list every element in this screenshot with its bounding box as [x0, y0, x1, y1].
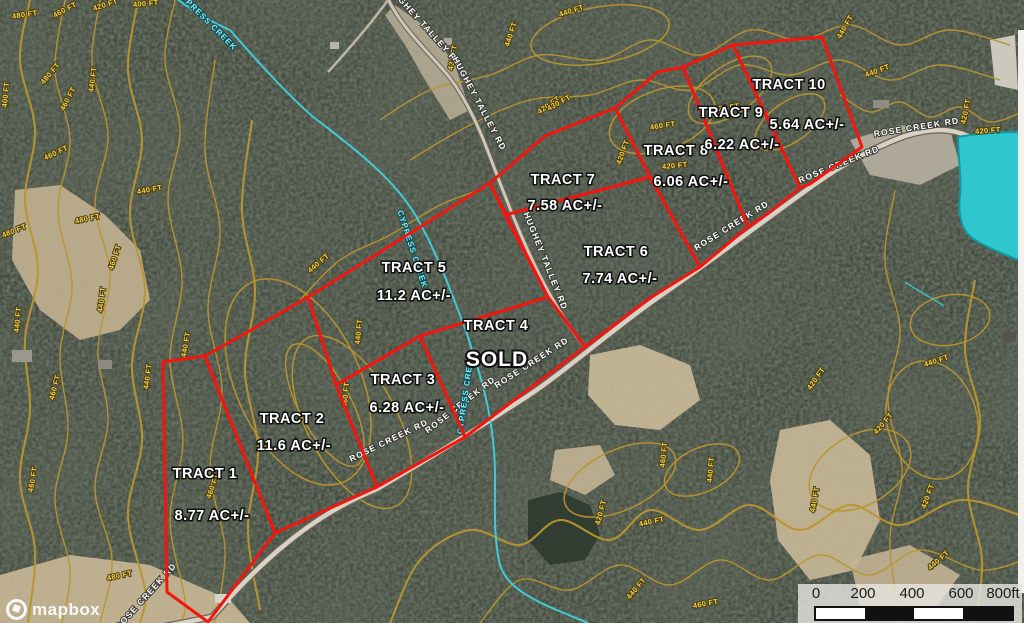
scale-tick: 0 — [812, 585, 820, 602]
tract-name-label: TRACT 4 — [464, 318, 529, 334]
tract-name-label: TRACT 3 — [371, 372, 436, 388]
tract-name-label: TRACT 6 — [584, 244, 649, 260]
building — [330, 42, 339, 49]
scale-tick: 400 — [899, 585, 924, 602]
mapbox-logo[interactable]: mapbox — [6, 599, 100, 620]
scale-bar-segments — [814, 606, 1014, 621]
tract-acreage-label: 11.2 AC+/- — [377, 288, 451, 304]
satellite-map[interactable]: 480 FT460 FT420 FT400 FT440 FT480 FT400 … — [0, 0, 1024, 623]
map-edge-strip — [1018, 30, 1024, 593]
building — [873, 100, 889, 108]
tract-name-label: TRACT 10 — [752, 77, 825, 93]
contour-elevation-label: 420 FT — [975, 125, 1001, 136]
tract-name-label: TRACT 5 — [382, 260, 447, 276]
mapbox-wordmark: mapbox — [32, 600, 100, 620]
tract-acreage-label: 5.64 AC+/- — [770, 117, 845, 133]
tract-name-label: TRACT 1 — [173, 466, 238, 482]
tract-acreage-label: 6.28 AC+/- — [370, 400, 445, 416]
tract-acreage-label: 7.58 AC+/- — [528, 198, 603, 214]
building — [98, 360, 112, 369]
tract-name-label: TRACT 8 — [644, 143, 709, 159]
scale-tick: 600 — [948, 585, 973, 602]
tract-acreage-label: 6.06 AC+/- — [654, 174, 729, 190]
scale-tick: 800ft — [986, 585, 1019, 602]
building — [1002, 332, 1016, 341]
scale-bar: 0 200 400 600 800ft — [798, 584, 1022, 623]
tract-name-label: TRACT 2 — [260, 411, 325, 427]
scale-tick: 200 — [850, 585, 875, 602]
tract-name-label: TRACT 9 — [699, 105, 764, 121]
tract-acreage-label: 6.22 AC+/- — [705, 137, 780, 153]
tract-acreage-label: 7.74 AC+/- — [583, 271, 658, 287]
tract-sold-label: SOLD — [466, 348, 528, 371]
tract-name-label: TRACT 7 — [531, 172, 596, 188]
tract-acreage-label: 8.77 AC+/- — [175, 508, 250, 524]
tract-acreage-label: 11.6 AC+/- — [257, 438, 331, 454]
map-canvas[interactable]: 480 FT460 FT420 FT400 FT440 FT480 FT400 … — [0, 0, 1024, 623]
mapbox-icon — [6, 599, 27, 620]
building — [12, 350, 32, 362]
